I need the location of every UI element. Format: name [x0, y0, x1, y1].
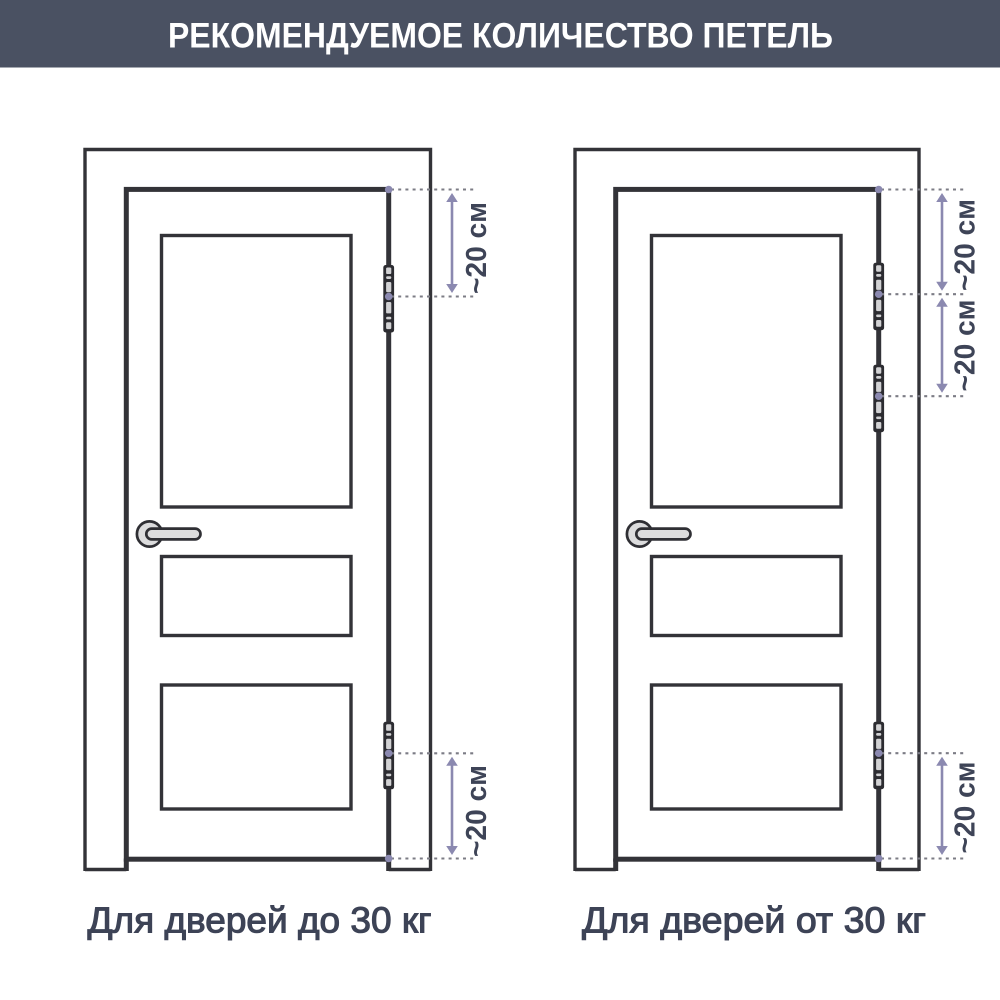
- svg-text:~20 см: ~20 см: [950, 762, 982, 854]
- svg-text:~20 см: ~20 см: [950, 199, 982, 291]
- svg-text:~20 см: ~20 см: [461, 765, 493, 857]
- svg-text:~20 см: ~20 см: [461, 202, 493, 294]
- svg-text:Для дверей от 30 кг: Для дверей от 30 кг: [582, 900, 926, 941]
- svg-text:~20 см: ~20 см: [950, 300, 982, 392]
- svg-text:Для дверей до 30 кг: Для дверей до 30 кг: [88, 900, 432, 941]
- svg-text:РЕКОМЕНДУЕМОЕ КОЛИЧЕСТВО ПЕТЕЛ: РЕКОМЕНДУЕМОЕ КОЛИЧЕСТВО ПЕТЕЛЬ: [168, 17, 833, 56]
